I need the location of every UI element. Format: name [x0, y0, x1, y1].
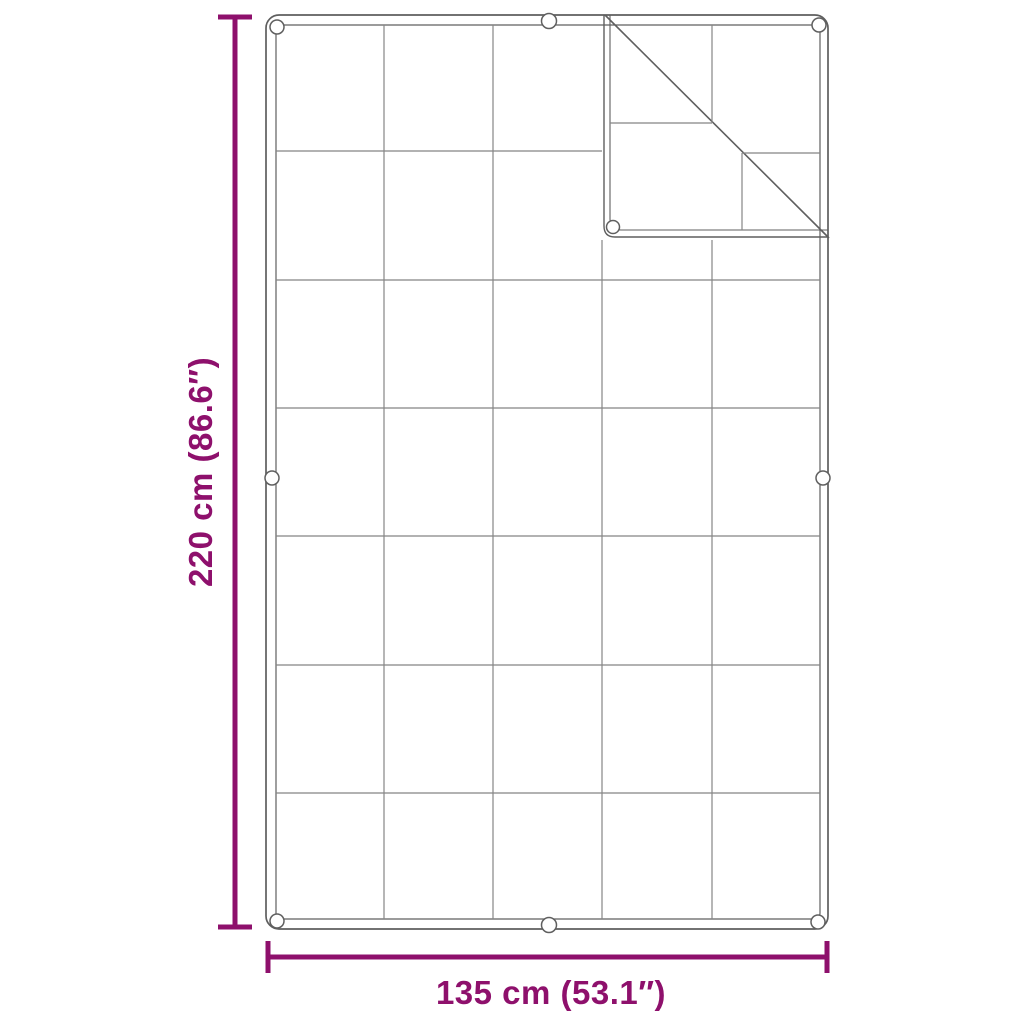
- grommet-flap-corner: [607, 221, 620, 234]
- grommet-top-right: [812, 18, 826, 32]
- grommet-bottom-right: [811, 915, 825, 929]
- width-dimension-label: 135 cm (53.1″): [436, 974, 666, 1011]
- grommet-bottom-left: [270, 914, 284, 928]
- grommet-right-middle: [816, 471, 830, 485]
- grommet-top-left: [270, 20, 284, 34]
- grommet-left-middle: [265, 471, 279, 485]
- height-dimension: [218, 17, 252, 927]
- tarp-dimension-drawing: 220 cm (86.6″) 135 cm (53.1″): [0, 0, 1024, 1024]
- grommet-bottom-middle: [542, 918, 557, 933]
- product-dimension-diagram: 220 cm (86.6″) 135 cm (53.1″): [0, 0, 1024, 1024]
- height-dimension-label: 220 cm (86.6″): [182, 357, 219, 587]
- width-dimension: [268, 941, 827, 973]
- grommet-top-middle: [542, 14, 557, 29]
